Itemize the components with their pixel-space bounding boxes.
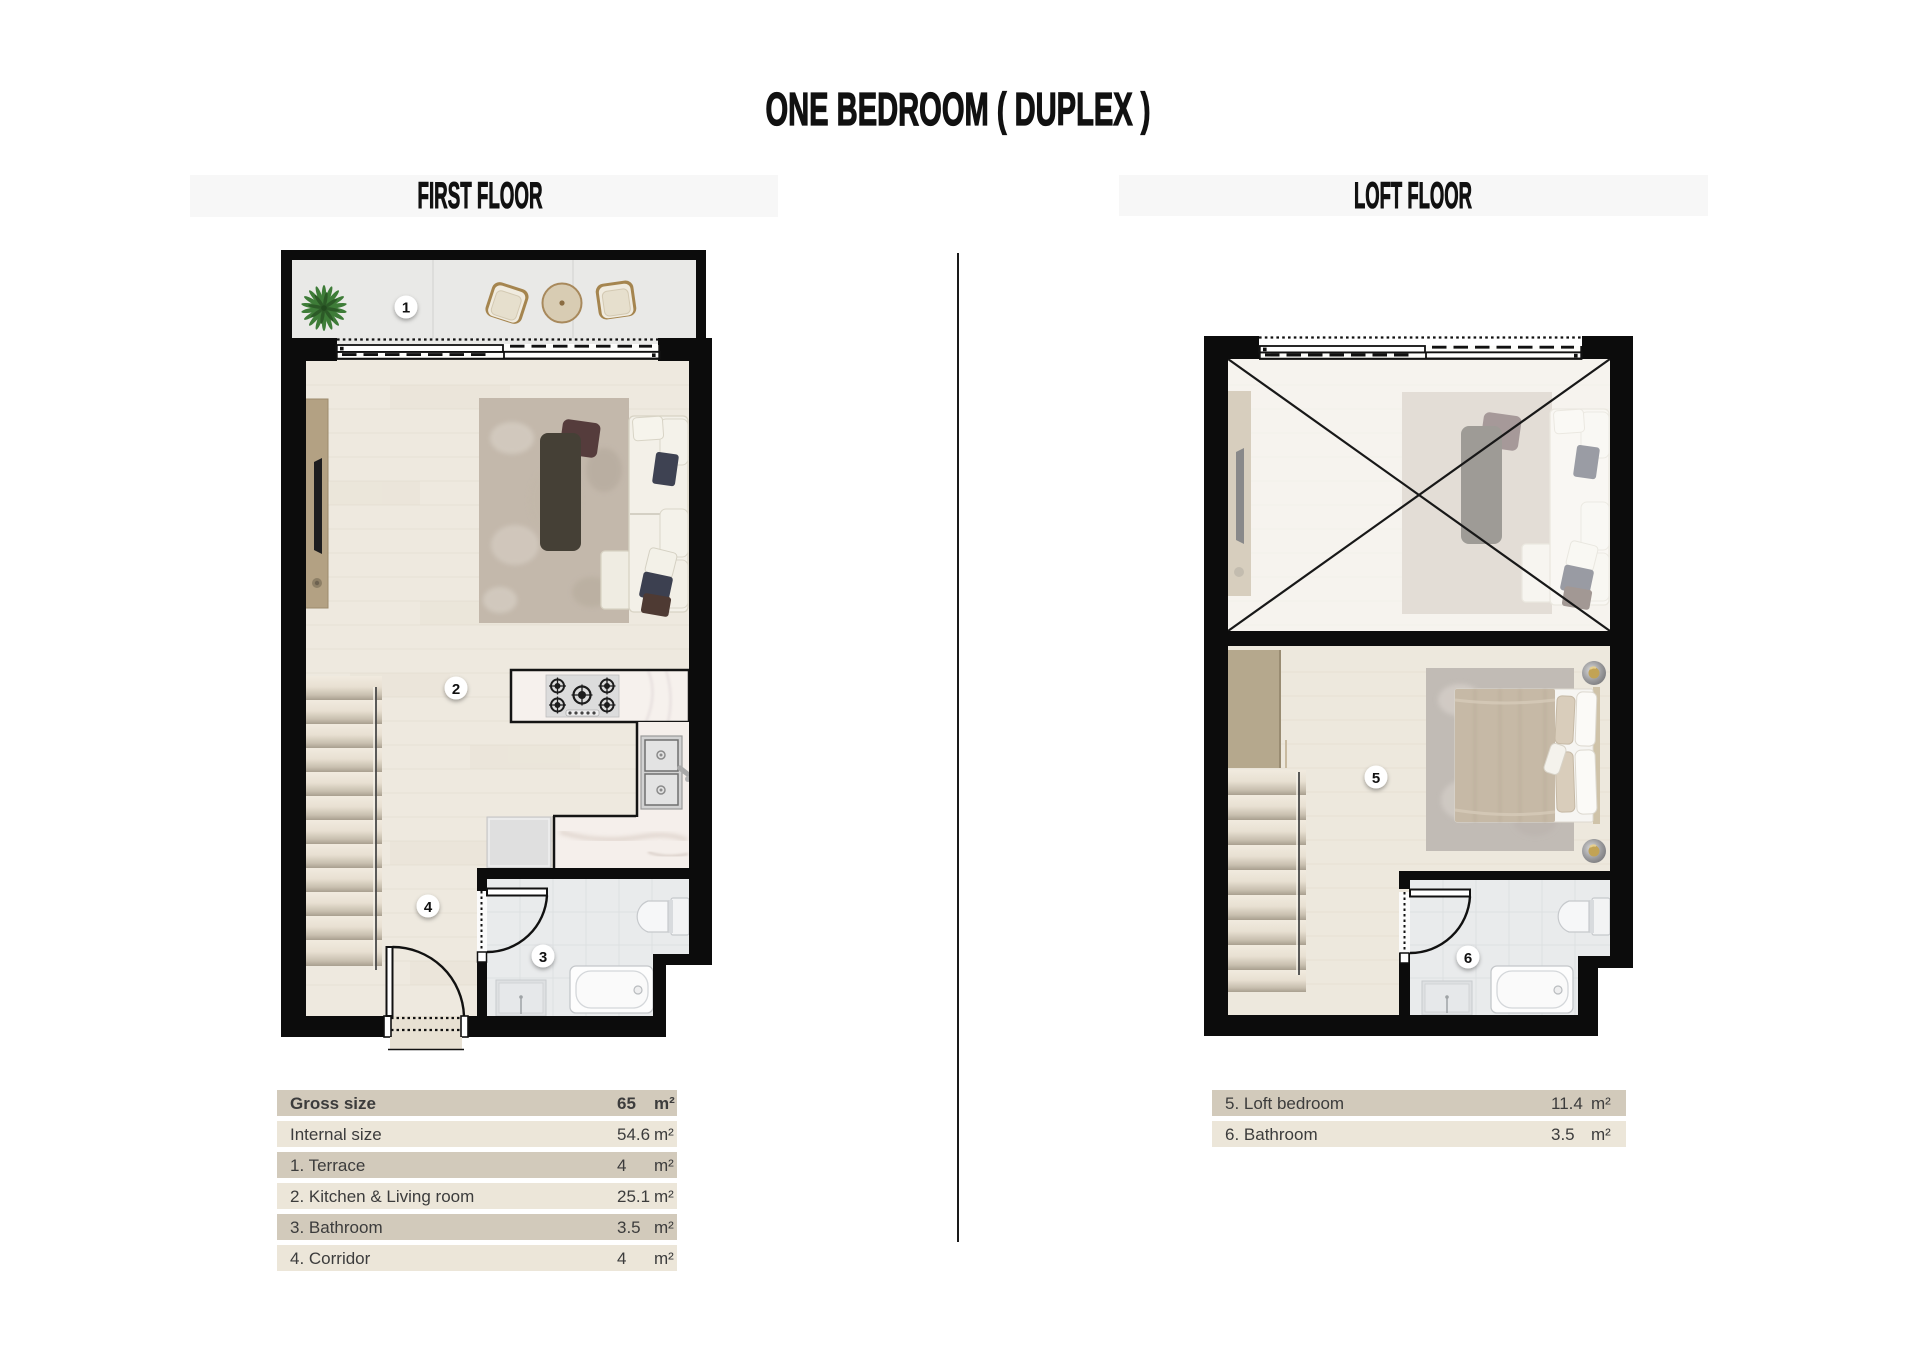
svg-text:1: 1 [402,300,410,317]
svg-text:5. Loft bedroom: 5. Loft bedroom [1225,1094,1344,1113]
svg-text:Internal size: Internal size [290,1125,382,1144]
svg-text:11.4: 11.4 [1551,1094,1583,1113]
svg-text:m²: m² [654,1156,674,1175]
svg-text:m²: m² [1591,1125,1611,1144]
svg-text:5: 5 [1372,770,1380,787]
svg-text:2: 2 [452,681,460,698]
svg-text:3. Bathroom: 3. Bathroom [290,1218,383,1237]
svg-text:4: 4 [424,899,433,916]
svg-text:54.6: 54.6 [617,1125,650,1144]
svg-text:65: 65 [617,1094,636,1113]
svg-text:3: 3 [539,949,547,966]
svg-text:Gross size: Gross size [290,1094,376,1113]
svg-text:m²: m² [654,1125,674,1144]
svg-text:3.5: 3.5 [1551,1125,1575,1144]
svg-text:6. Bathroom: 6. Bathroom [1225,1125,1318,1144]
svg-text:m²: m² [1591,1094,1611,1113]
svg-text:6: 6 [1464,950,1472,967]
svg-text:2. Kitchen & Living room: 2. Kitchen & Living room [290,1187,474,1206]
svg-text:1. Terrace: 1. Terrace [290,1156,365,1175]
svg-text:m²: m² [654,1187,674,1206]
svg-text:m²: m² [654,1218,674,1237]
svg-text:3.5: 3.5 [617,1218,641,1237]
svg-text:25.1: 25.1 [617,1187,650,1206]
svg-text:4. Corridor: 4. Corridor [290,1249,371,1268]
svg-text:4: 4 [617,1156,626,1175]
svg-text:ONE BEDROOM ( DUPLEX ): ONE BEDROOM ( DUPLEX ) [766,83,1151,135]
svg-text:m²: m² [654,1094,675,1113]
svg-text:LOFT FLOOR: LOFT FLOOR [1354,175,1472,216]
svg-text:m²: m² [654,1249,674,1268]
svg-text:4: 4 [617,1249,626,1268]
svg-text:FIRST FLOOR: FIRST FLOOR [418,175,543,216]
